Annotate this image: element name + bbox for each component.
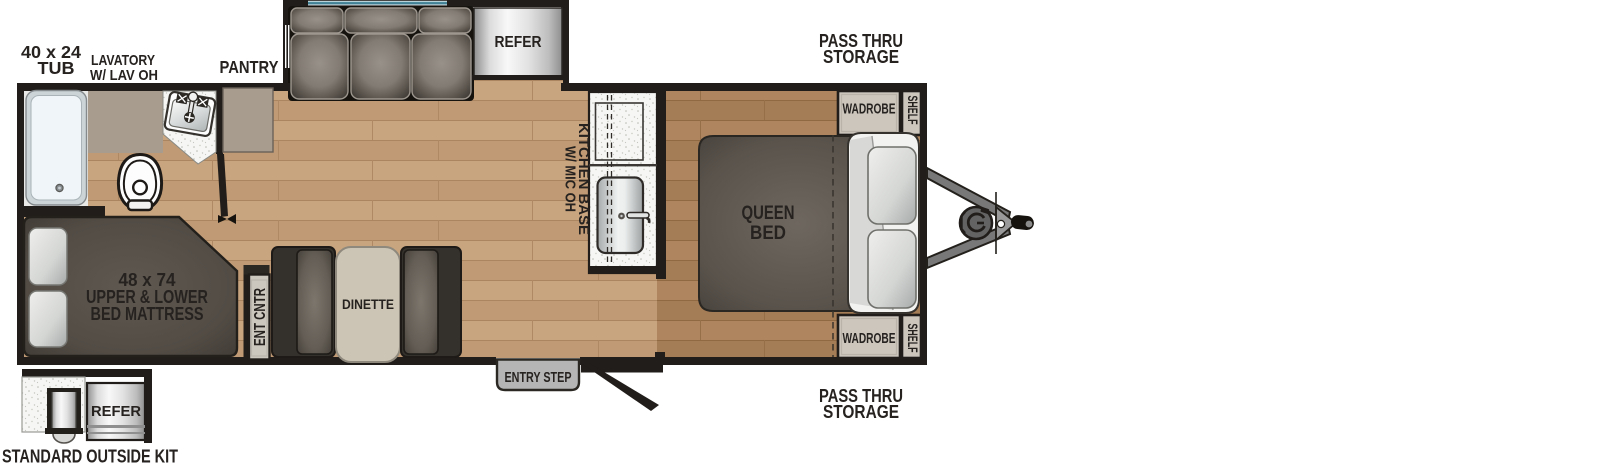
svg-text:QUEEN: QUEEN <box>742 202 795 224</box>
svg-text:WADROBE: WADROBE <box>843 102 896 118</box>
svg-text:WADROBE: WADROBE <box>843 331 896 347</box>
svg-text:BED MATTRESS: BED MATTRESS <box>91 304 204 324</box>
svg-text:SHELF: SHELF <box>905 324 920 353</box>
svg-text:REFER: REFER <box>495 34 542 51</box>
svg-text:ENTRY STEP: ENTRY STEP <box>505 370 572 386</box>
svg-text:STORAGE: STORAGE <box>823 47 899 67</box>
svg-text:TUB: TUB <box>38 58 75 78</box>
svg-text:STORAGE: STORAGE <box>823 402 899 422</box>
svg-text:REFER: REFER <box>91 404 142 420</box>
svg-text:W/ LAV OH: W/ LAV OH <box>90 67 158 84</box>
svg-text:ENT CNTR: ENT CNTR <box>252 288 269 346</box>
svg-text:BED: BED <box>750 222 786 244</box>
svg-text:DINETTE: DINETTE <box>342 296 394 312</box>
svg-text:PANTRY: PANTRY <box>220 57 279 77</box>
svg-text:STANDARD OUTSIDE KIT: STANDARD OUTSIDE KIT <box>2 446 179 467</box>
svg-text:SHELF: SHELF <box>905 96 920 125</box>
